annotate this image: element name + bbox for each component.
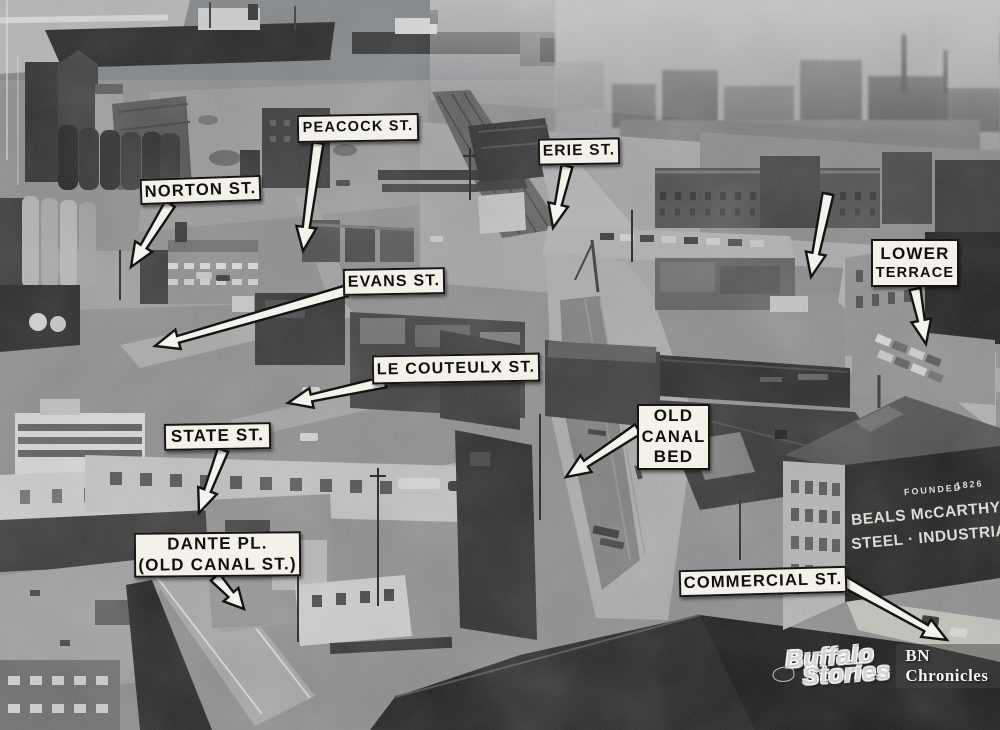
erie-st-label: ERIE ST.: [538, 137, 620, 165]
label-text: CANAL: [642, 427, 706, 447]
aerial-photo: FOUNDED 1826 BEALS McCARTHY & RO STEEL ·…: [0, 0, 1000, 730]
norton-st-label: NORTON ST.: [140, 175, 262, 205]
state-st-label: STATE ST.: [164, 422, 271, 451]
label-text: STATE ST.: [171, 425, 265, 447]
commercial-st-label: COMMERCIAL ST.: [679, 566, 848, 597]
lower-terrace-label: LOWERTERRACE: [871, 239, 959, 287]
watermark: Buffalo Stories BN Chronicles: [786, 644, 1000, 688]
dante-pl-label: DANTE PL.(OLD CANAL ST.): [134, 531, 301, 577]
label-text: NORTON ST.: [144, 178, 256, 202]
label-text: ERIE ST.: [543, 141, 616, 161]
label-text: PEACOCK ST.: [303, 118, 414, 138]
buffalo-stories-logo: Buffalo Stories: [785, 644, 892, 689]
label-text: EVANS ST.: [348, 271, 441, 292]
label-text: DANTE PL.: [167, 533, 268, 555]
le-couteulx-st-label: LE COUTEULX ST.: [372, 353, 540, 385]
label-text: TERRACE: [876, 265, 955, 283]
label-text: (OLD CANAL ST.): [138, 554, 297, 576]
label-text: LE COUTEULX ST.: [377, 357, 536, 379]
watermark-caption: BN Chronicles: [896, 644, 1000, 688]
label-text: BED: [654, 447, 694, 468]
label-text: OLD: [654, 406, 693, 427]
label-text: LOWER: [880, 244, 949, 265]
watermark-line2: Stories: [802, 661, 892, 687]
annotation-labels: NORTON ST.PEACOCK ST.ERIE ST.EVANS ST.LE…: [0, 0, 1000, 730]
evans-st-label: EVANS ST.: [343, 267, 445, 296]
old-canal-bed-label: OLDCANALBED: [637, 404, 710, 470]
label-text: COMMERCIAL ST.: [683, 569, 842, 593]
peacock-st-label: PEACOCK ST.: [297, 113, 419, 143]
buffalo-icon: [772, 666, 795, 682]
